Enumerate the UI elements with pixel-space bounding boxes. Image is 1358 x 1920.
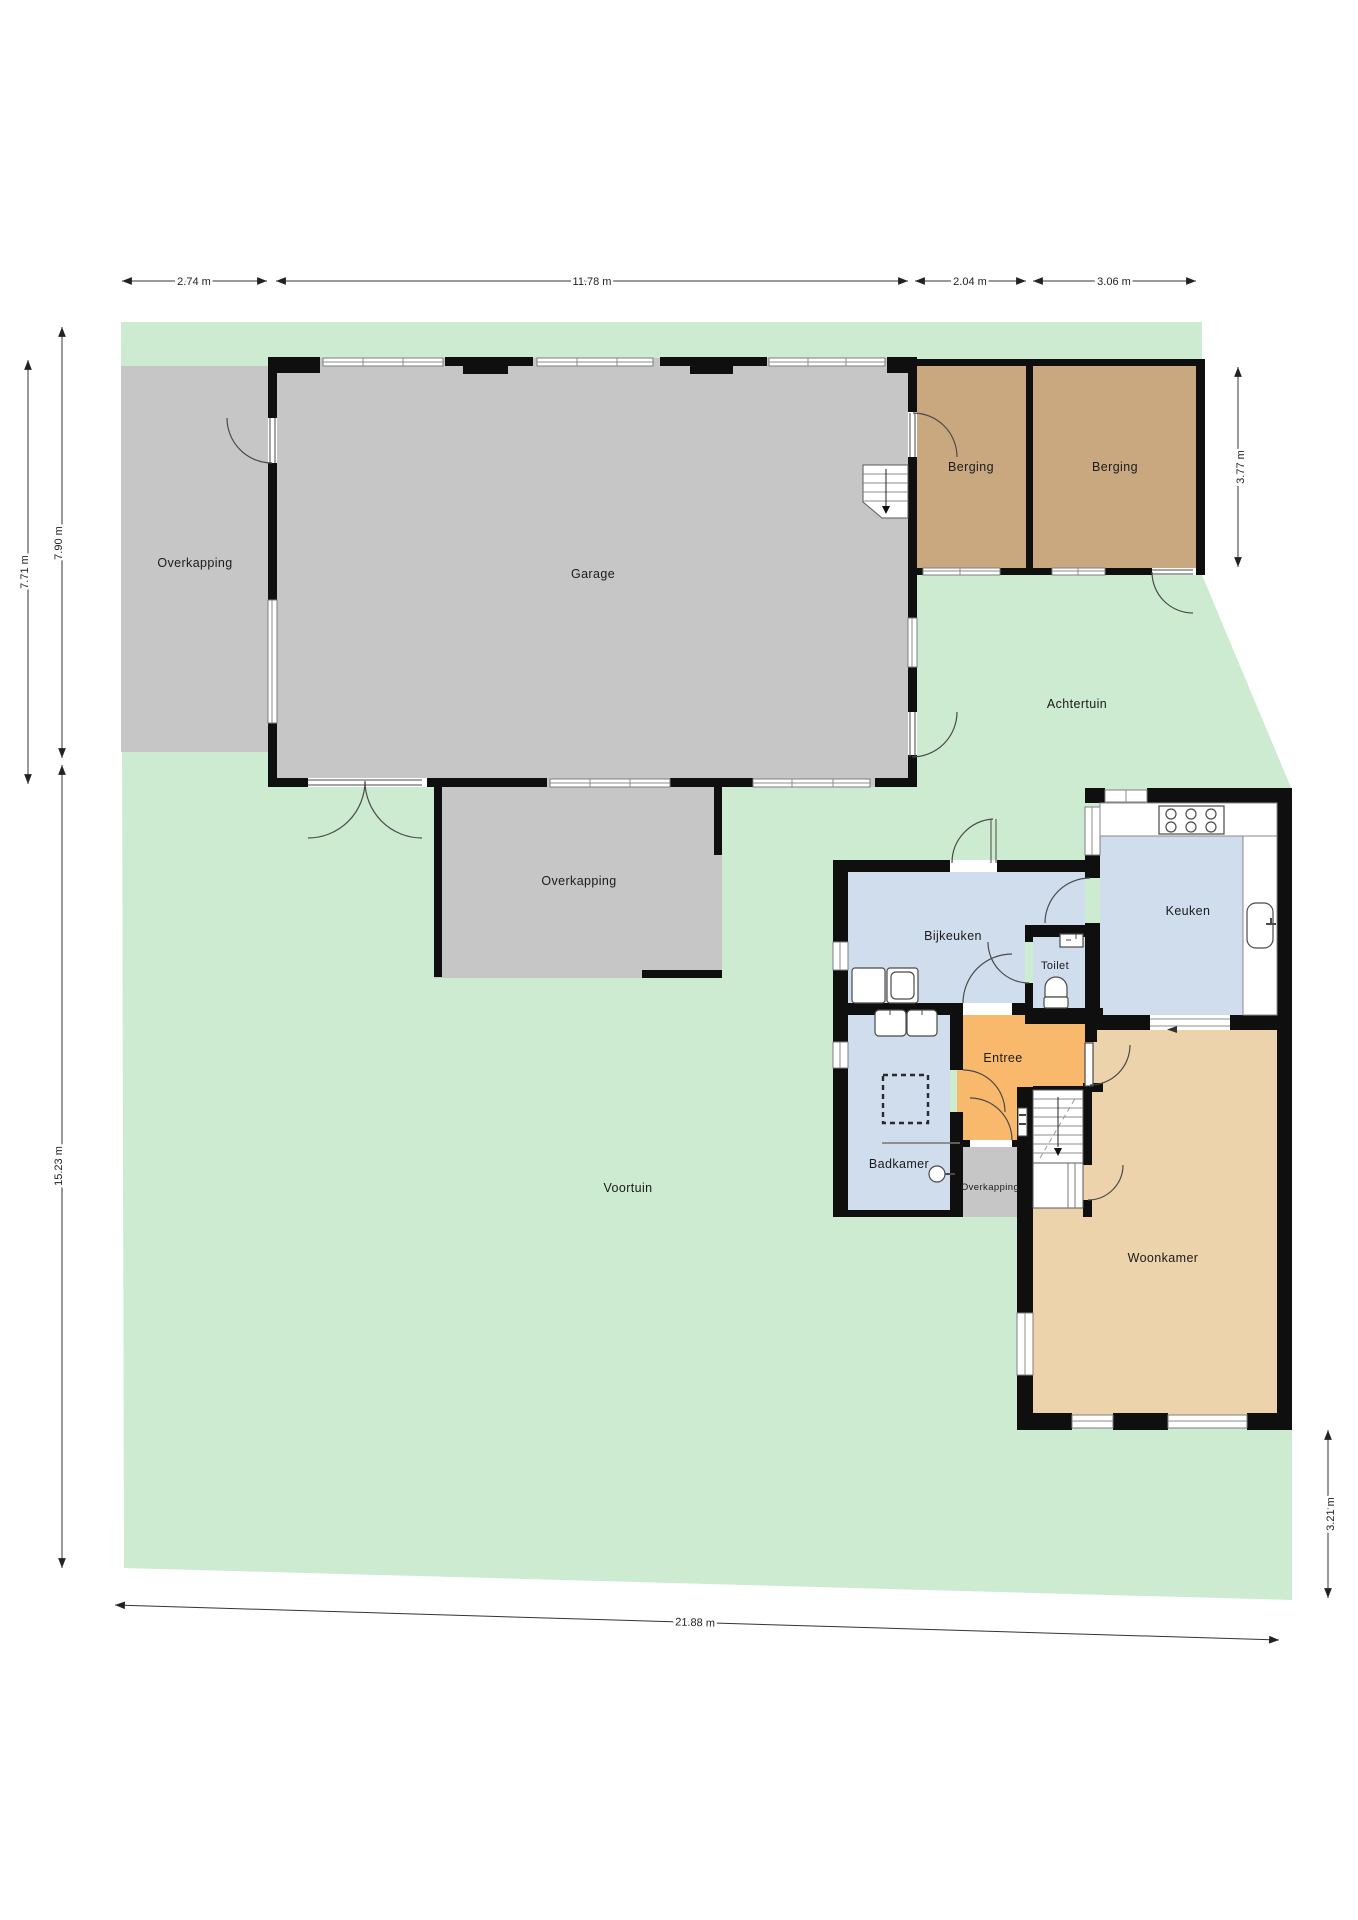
dim-label-left-3: 15.23 m [53,1146,65,1186]
dim-label-bottom-1: 21.88 m [675,1616,715,1629]
dim-label-left-2: 7.71 m [19,555,31,589]
dim-label-top-2: 11.78 m [573,276,612,288]
entree-floor-lobe [957,1090,1017,1147]
washer-icon [852,968,885,1003]
kitchen-sink-icon [1247,903,1273,948]
room-label-achtertuin: Achtertuin [1047,697,1107,711]
dim-label-left-1: 7.90 m [53,526,65,560]
room-label-toilet: Toilet [1041,960,1069,972]
room-label-badkamer: Badkamer [869,1157,929,1171]
door-leaf-woonkamer [1085,1043,1093,1086]
room-label-overkapping-porch: Overkapping [961,1182,1019,1193]
room-label-woonkamer: Woonkamer [1128,1251,1199,1265]
meter-cabinet [1018,1108,1027,1136]
dim-label-right-1: 3.77 m [1235,450,1247,484]
dim-label-top-3: 2.04 m [953,276,987,288]
dim-label-right-2: 3.21 m [1325,1497,1337,1531]
floorplan-page: Overkapping Garage Berging Berging Achte… [0,0,1358,1920]
room-label-voortuin: Voortuin [603,1181,652,1195]
room-label-berging-1: Berging [948,460,994,474]
entree-floor-main [957,1013,1090,1090]
toilet-sink-icon [1060,934,1083,947]
room-label-berging-2: Berging [1092,460,1138,474]
room-label-bijkeuken: Bijkeuken [924,929,982,943]
toilet-bowl-icon [1045,977,1067,997]
room-label-garage: Garage [571,567,615,581]
room-label-overkapping-left: Overkapping [157,556,232,570]
dim-label-top-4: 3.06 m [1097,276,1131,288]
floorplan-drawing: Overkapping Garage Berging Berging Achte… [0,0,1358,1920]
room-label-keuken: Keuken [1166,904,1211,918]
room-label-overkapping-annex: Overkapping [541,874,616,888]
dim-label-top-1: 2.74 m [177,276,211,288]
room-label-entree: Entree [983,1051,1022,1065]
bath-sink-icon [929,1166,945,1182]
